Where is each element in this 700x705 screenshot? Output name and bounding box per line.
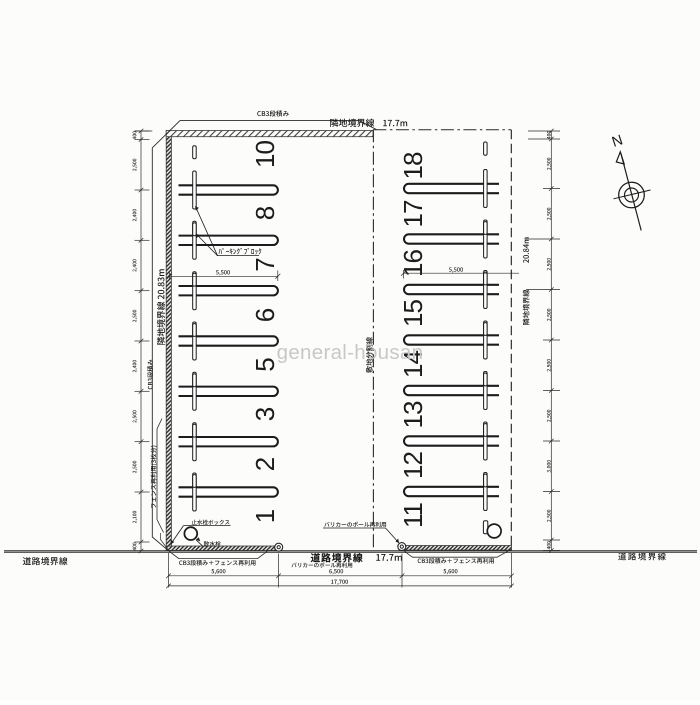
svg-text:15: 15 <box>398 300 428 327</box>
svg-text:general-housan: general-housan <box>277 341 424 364</box>
svg-text:2: 2 <box>250 457 280 471</box>
svg-text:11: 11 <box>398 502 428 528</box>
svg-text:N: N <box>610 132 625 150</box>
svg-text:3: 3 <box>250 407 280 421</box>
svg-text:1: 1 <box>250 509 280 523</box>
svg-text:12: 12 <box>398 452 428 479</box>
svg-text:16: 16 <box>398 250 428 277</box>
svg-text:18: 18 <box>398 152 428 179</box>
svg-text:8: 8 <box>250 206 280 220</box>
svg-text:6: 6 <box>250 308 280 322</box>
svg-text:13: 13 <box>398 401 428 428</box>
svg-text:10: 10 <box>250 141 280 168</box>
svg-text:7: 7 <box>250 258 280 272</box>
svg-text:5: 5 <box>250 358 280 372</box>
svg-text:17: 17 <box>398 200 428 227</box>
